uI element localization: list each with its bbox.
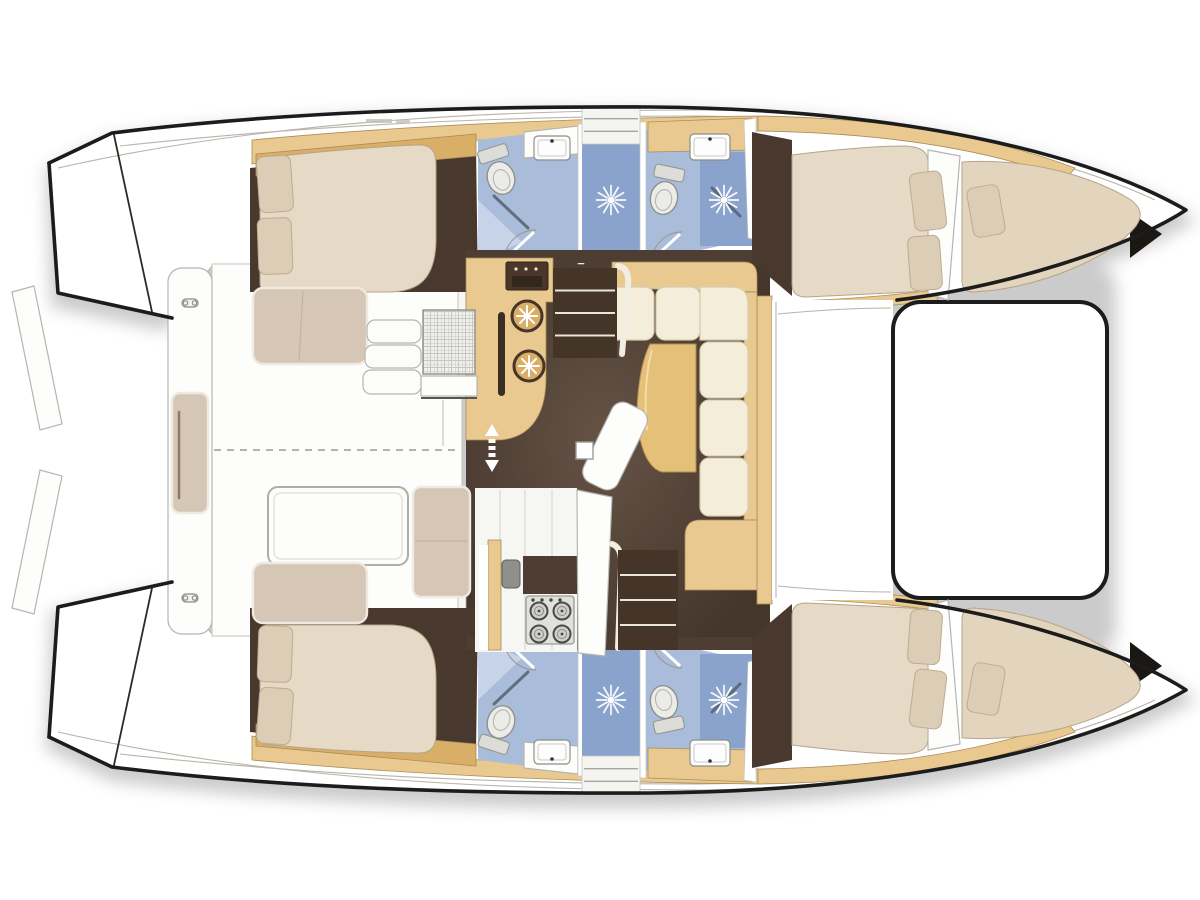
stairs xyxy=(618,550,678,650)
cockpit-side-cushion xyxy=(253,288,367,364)
cockpit-side-cushion-stbd xyxy=(253,563,367,623)
oven-icon xyxy=(506,262,548,290)
pillow xyxy=(909,668,948,729)
deck-marking xyxy=(366,119,392,123)
galley-wall-trim xyxy=(488,540,501,650)
swim-step-stbd xyxy=(12,470,62,614)
fridge-hatch-snowflake-icon xyxy=(512,301,542,331)
sink-icon xyxy=(690,134,730,160)
pillow xyxy=(256,687,294,745)
catamaran-floor-plan: Catamaran deck and accommodation floor p… xyxy=(0,0,1200,900)
galley-handle xyxy=(498,312,505,396)
swim-platforms xyxy=(12,286,62,614)
mast-post xyxy=(576,442,593,459)
pillow xyxy=(907,235,943,291)
deck-marking xyxy=(396,120,410,123)
stove-icon xyxy=(526,596,574,644)
cockpit-step xyxy=(365,345,421,368)
cleat-icon xyxy=(182,299,198,307)
sink-icon xyxy=(534,740,570,764)
transom-bench-cushion xyxy=(172,393,208,513)
pillow xyxy=(257,625,293,682)
pillow xyxy=(909,170,948,231)
foredeck xyxy=(772,300,893,600)
cockpit-table xyxy=(268,487,408,565)
sink-icon-galley xyxy=(502,560,520,588)
fridge-hatch-snowflake-icon xyxy=(514,351,544,381)
pillow xyxy=(257,217,293,274)
cockpit-step xyxy=(363,370,421,394)
trampoline-net xyxy=(893,302,1107,598)
stbd-fwd-bed xyxy=(792,603,928,754)
stairs xyxy=(553,268,617,358)
galley-counter xyxy=(523,556,582,594)
nav-desk xyxy=(685,520,757,590)
stairs xyxy=(582,756,640,794)
sink-icon xyxy=(534,136,570,160)
saloon-front-wall xyxy=(757,296,772,604)
stairs xyxy=(582,106,640,144)
cockpit-aft-facing-cushion xyxy=(413,487,470,597)
sink-icon xyxy=(690,740,730,766)
cockpit-step xyxy=(367,320,421,343)
cleat-icon xyxy=(182,594,198,602)
floor-plan-page: Catamaran deck and accommodation floor p… xyxy=(0,0,1200,900)
pillow xyxy=(256,155,294,213)
port-fwd-bed xyxy=(792,146,928,297)
pillow xyxy=(907,609,943,665)
